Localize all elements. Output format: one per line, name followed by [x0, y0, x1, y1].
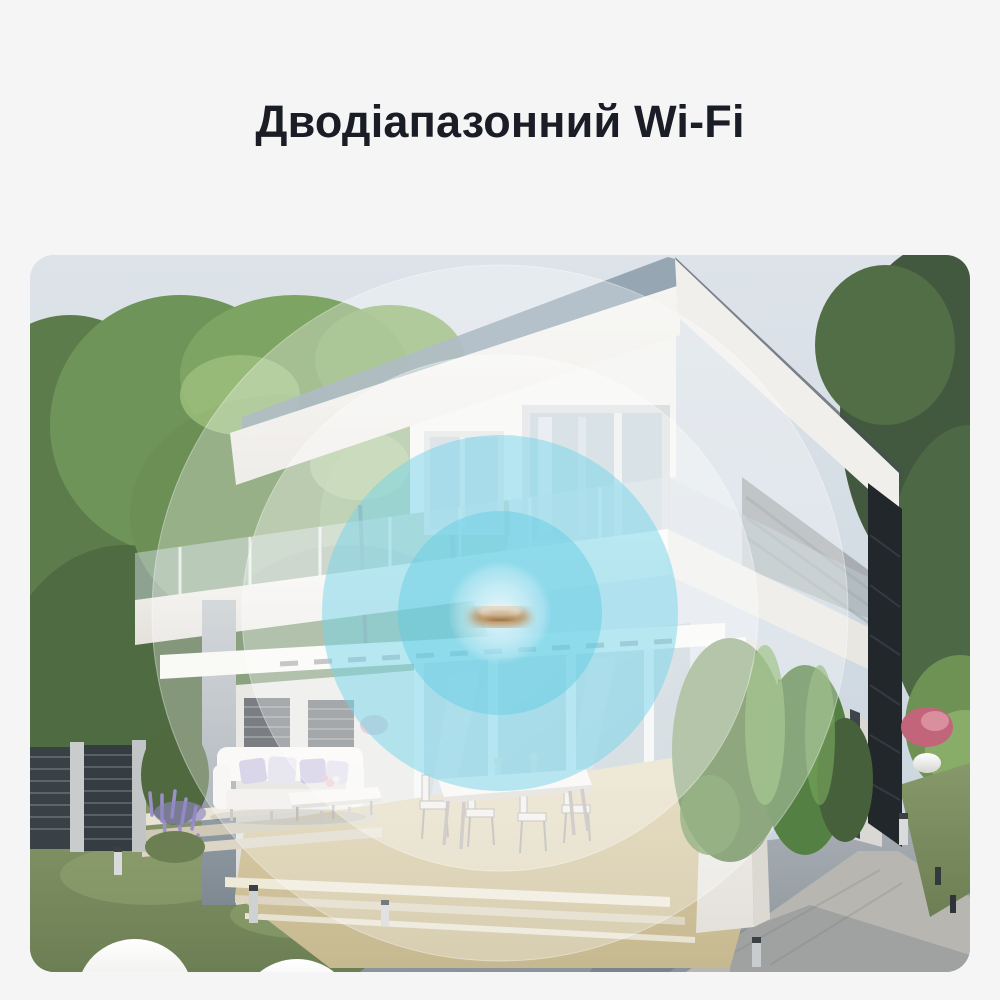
wifi-rings — [152, 265, 848, 961]
hero-image-card — [30, 255, 970, 972]
page: Дводіапазонний Wi-Fi — [0, 0, 1000, 1000]
house-scene-illustration — [30, 255, 970, 972]
fence-post — [70, 742, 84, 852]
dome-light-small — [913, 753, 941, 773]
page-title: Дводіапазонний Wi-Fi — [0, 0, 1000, 144]
